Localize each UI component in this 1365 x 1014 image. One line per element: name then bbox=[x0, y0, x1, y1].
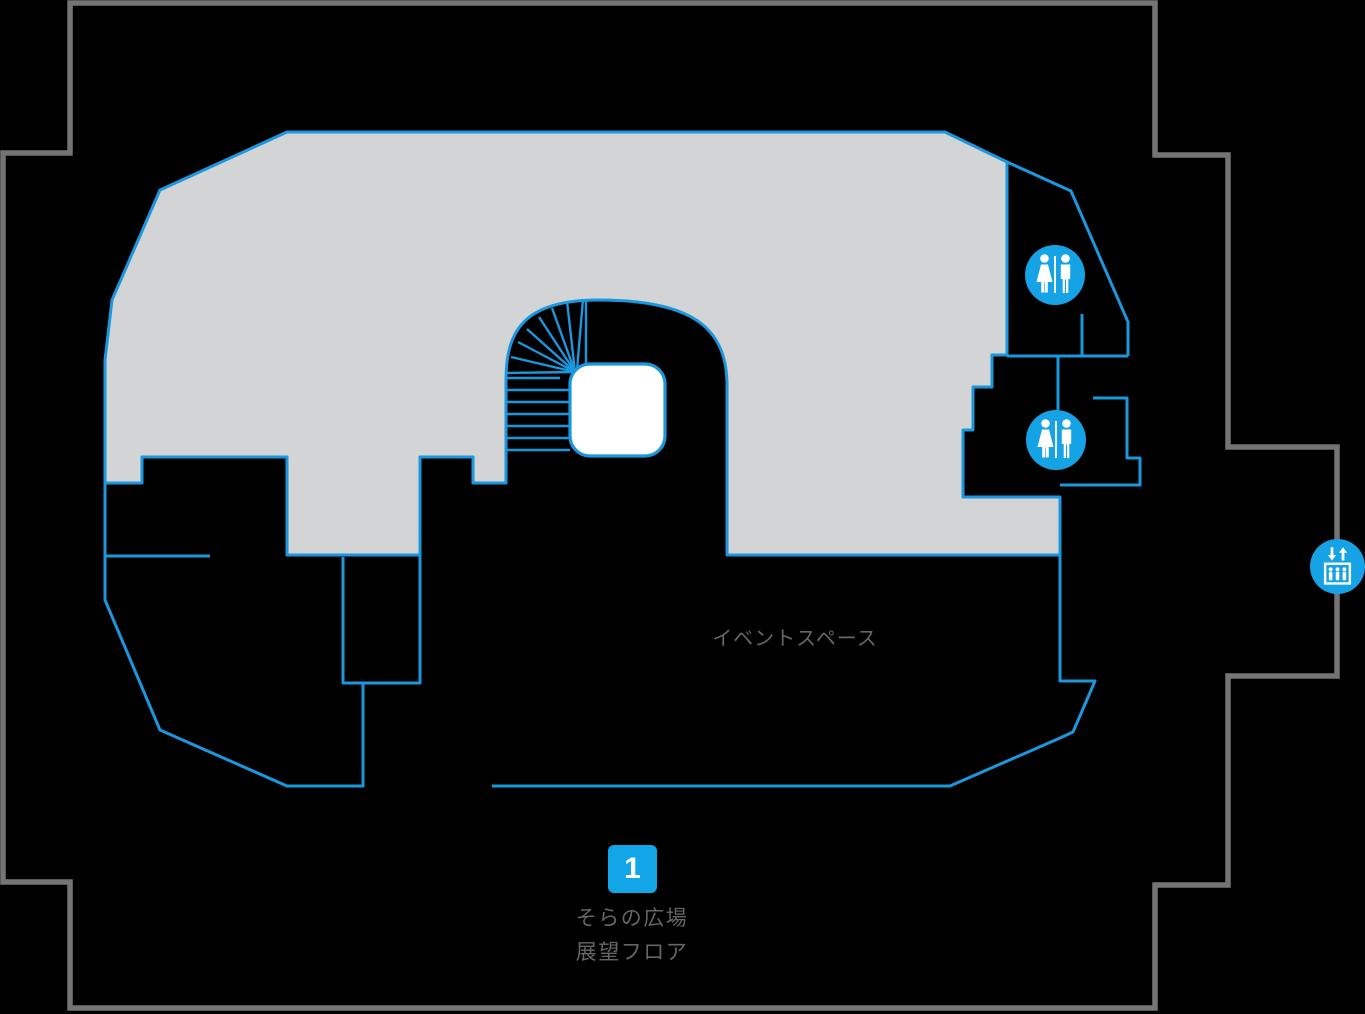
restroom-icon[interactable] bbox=[1026, 410, 1086, 470]
stair-core bbox=[570, 364, 665, 456]
floor-map-svg bbox=[0, 0, 1365, 1014]
floor-map-canvas: イベントスペース 1 そらの広場 展望フロア bbox=[0, 0, 1365, 1014]
floor-marker-1[interactable]: 1 bbox=[608, 845, 657, 893]
floor-marker-number: 1 bbox=[624, 852, 641, 886]
floor-plate bbox=[105, 132, 1060, 555]
legend-line-2: 展望フロア bbox=[532, 941, 732, 965]
legend-line-1: そらの広場 bbox=[532, 907, 732, 931]
restroom-icon[interactable] bbox=[1025, 245, 1085, 305]
event-space-label: イベントスペース bbox=[695, 628, 895, 651]
elevator-icon[interactable] bbox=[1310, 539, 1365, 594]
